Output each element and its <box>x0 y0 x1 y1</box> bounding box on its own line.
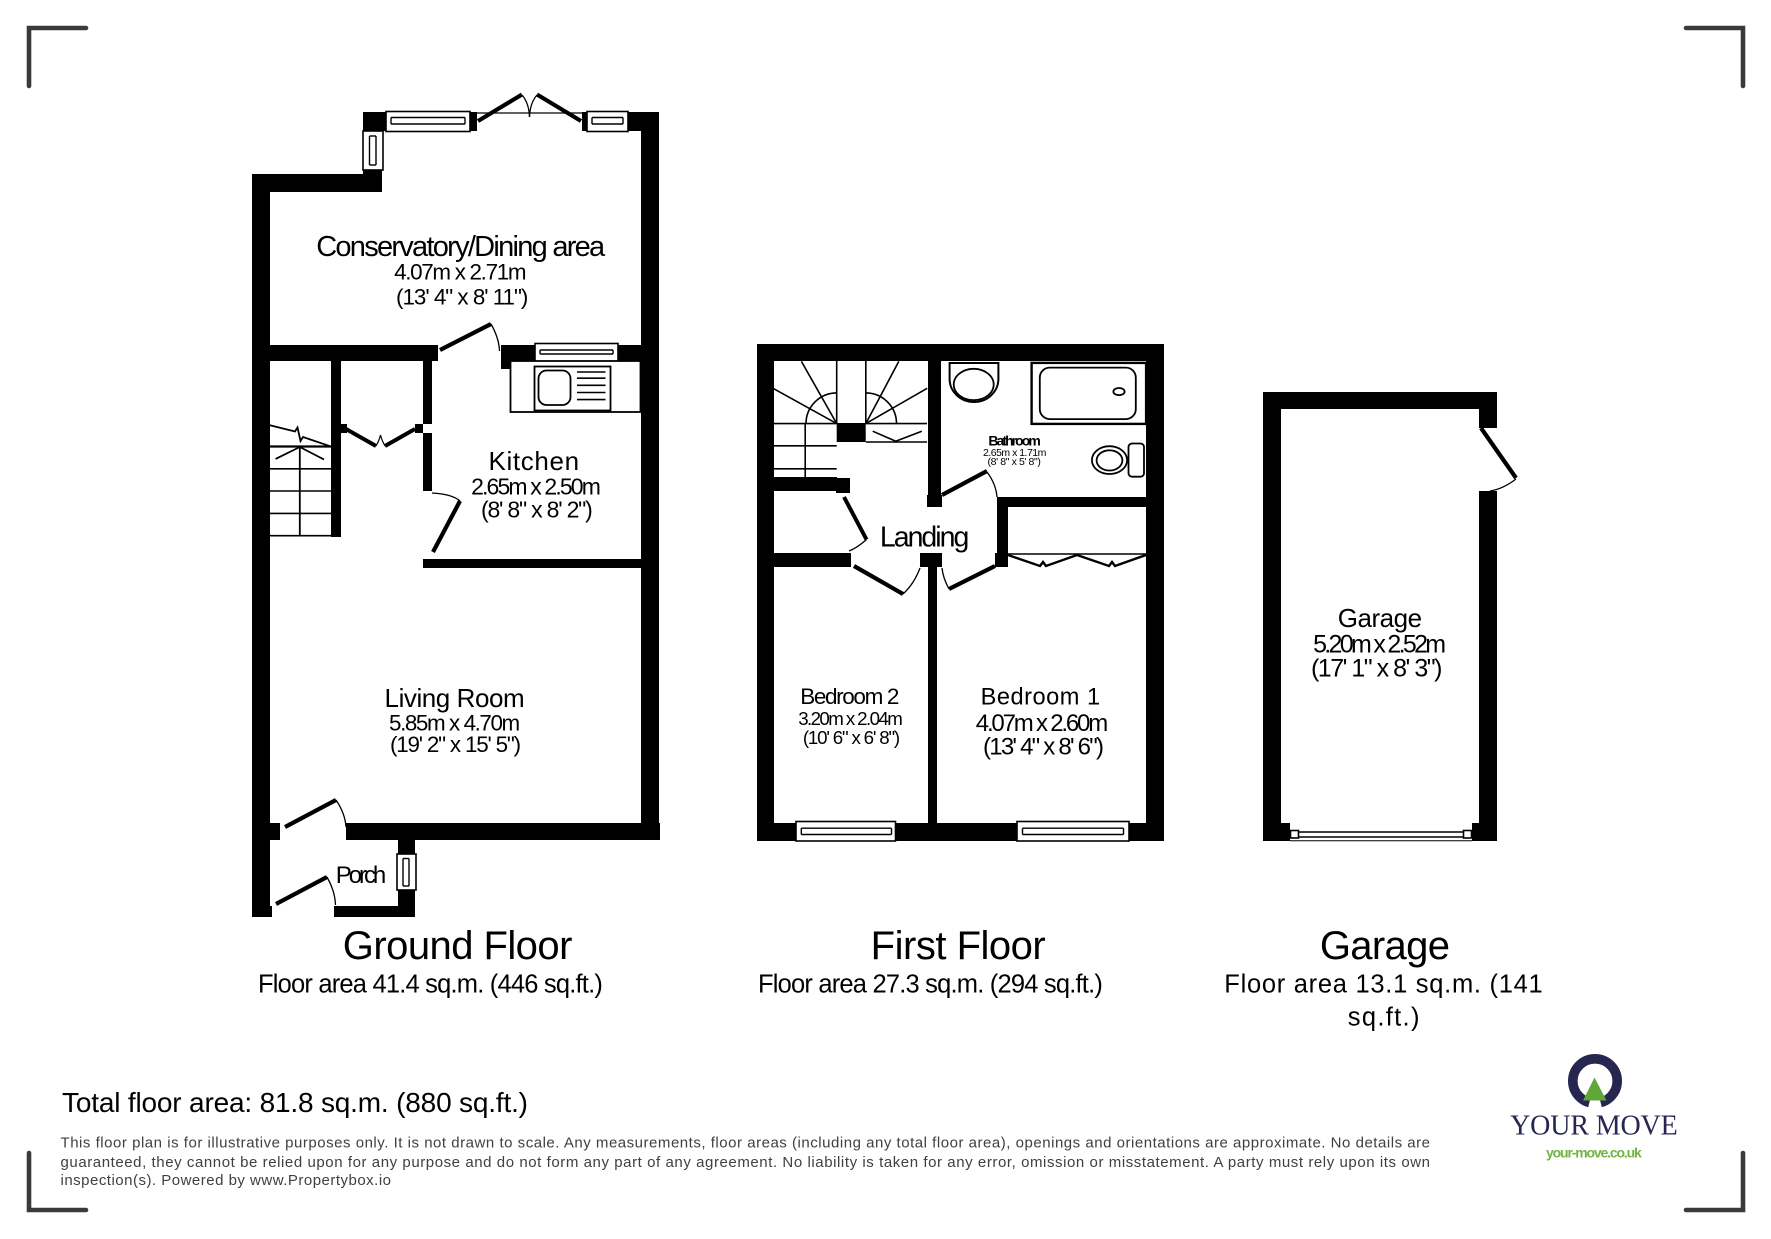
svg-text:inspection(s). Powered by www.: inspection(s). Powered by www.Propertybo… <box>61 1172 392 1189</box>
svg-text:4.07m x 2.71m: 4.07m x 2.71m <box>394 260 526 285</box>
svg-text:guaranteed, they cannot be rel: guaranteed, they cannot be relied upon f… <box>61 1154 1430 1171</box>
svg-text:This floor plan is for illustr: This floor plan is for illustrative purp… <box>61 1135 1431 1152</box>
svg-text:Ground Floor: Ground Floor <box>343 924 573 968</box>
svg-text:Garage: Garage <box>1320 924 1450 968</box>
svg-text:Total floor area: 81.8 sq.m. (: Total floor area: 81.8 sq.m. (880 sq.ft.… <box>62 1087 528 1118</box>
svg-text:Floor area 27.3 sq.m. (294 sq.: Floor area 27.3 sq.m. (294 sq.ft.) <box>758 970 1103 998</box>
svg-text:Landing: Landing <box>880 522 970 554</box>
svg-text:3.20m x 2.04m: 3.20m x 2.04m <box>798 708 903 729</box>
svg-text:(17' 1" x 8' 3"): (17' 1" x 8' 3") <box>1311 655 1443 683</box>
svg-text:YOUR MOVE: YOUR MOVE <box>1510 1110 1678 1141</box>
svg-text:Conservatory/Dining area: Conservatory/Dining area <box>316 231 606 263</box>
svg-text:Floor area 41.4 sq.m. (446 sq.: Floor area 41.4 sq.m. (446 sq.ft.) <box>258 970 603 998</box>
svg-text:Garage: Garage <box>1338 603 1422 633</box>
svg-text:Bedroom 1: Bedroom 1 <box>981 685 1101 711</box>
svg-text:Living Room: Living Room <box>385 683 525 713</box>
svg-text:(13' 4" x 8' 11"): (13' 4" x 8' 11") <box>396 285 528 310</box>
svg-text:(8' 8" x 5' 8"): (8' 8" x 5' 8") <box>988 456 1041 468</box>
svg-text:Bedroom 2: Bedroom 2 <box>800 684 899 709</box>
svg-text:Bathroom: Bathroom <box>988 432 1040 448</box>
svg-text:sq.ft.): sq.ft.) <box>1348 1003 1420 1031</box>
svg-text:your-move.co.uk: your-move.co.uk <box>1546 1145 1642 1161</box>
svg-text:(10' 6" x 6' 8"): (10' 6" x 6' 8") <box>803 727 900 748</box>
svg-text:Porch: Porch <box>336 862 387 889</box>
svg-text:(13' 4" x 8' 6"): (13' 4" x 8' 6") <box>983 734 1104 761</box>
svg-text:First Floor: First Floor <box>871 924 1046 968</box>
svg-text:Floor area 13.1 sq.m. (141: Floor area 13.1 sq.m. (141 <box>1224 970 1542 998</box>
svg-text:(8' 8" x 8' 2"): (8' 8" x 8' 2") <box>481 497 593 523</box>
svg-text:(19' 2" x 15' 5"): (19' 2" x 15' 5") <box>390 732 521 757</box>
svg-text:Kitchen: Kitchen <box>488 446 579 476</box>
